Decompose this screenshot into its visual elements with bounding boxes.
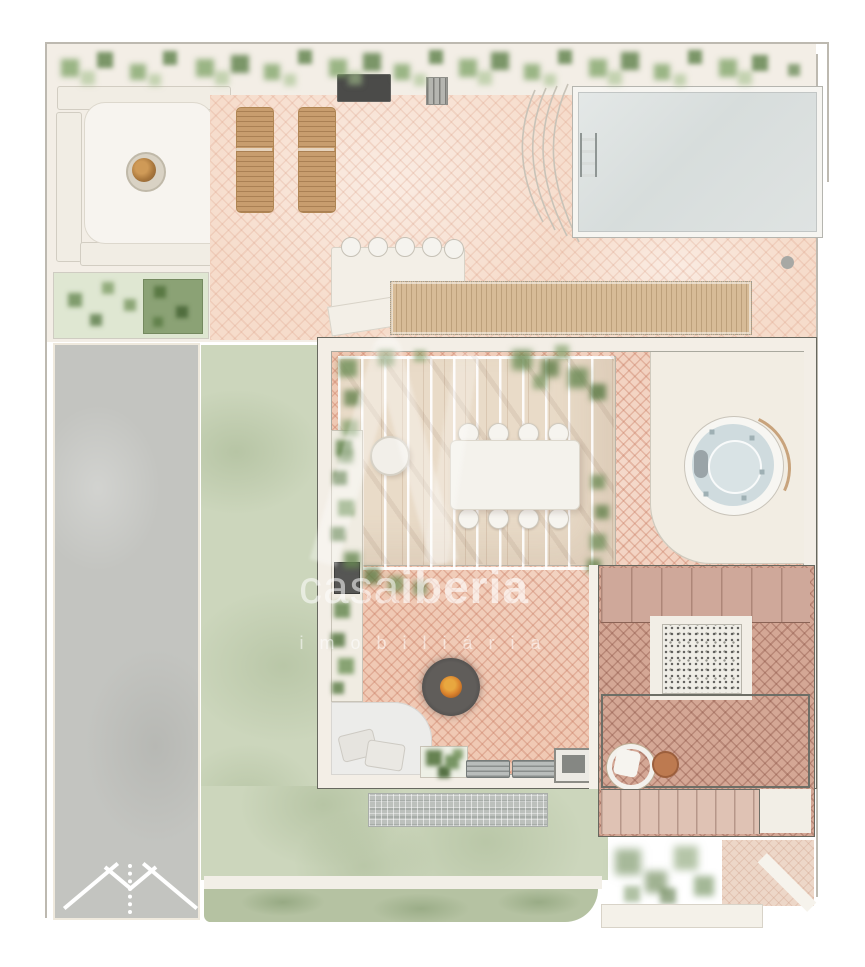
- lower-path-band: [601, 904, 763, 928]
- watermark-brand: casaiberia: [244, 564, 584, 610]
- wood-deck-bench: [390, 281, 752, 335]
- jacuzzi-pillow: [694, 450, 708, 478]
- boundary-left: [45, 42, 47, 918]
- fire-table-bowl: [132, 158, 156, 182]
- floor-cushion: [364, 739, 406, 772]
- bar-stool: [422, 237, 442, 257]
- sun-lounger-fold: [236, 148, 272, 151]
- dining-chair: [548, 508, 569, 529]
- garden-bench: [466, 760, 510, 778]
- annex-plank-steps: [601, 568, 810, 623]
- garden-path: [204, 876, 602, 889]
- side-table: [652, 751, 679, 778]
- shrub-box: [143, 279, 203, 334]
- annex-stairs: [601, 789, 760, 834]
- bar-stool: [444, 239, 464, 259]
- brand-logo-mark: [295, 328, 495, 573]
- boundary-top: [45, 42, 829, 44]
- site-plan: casaiberia imobiliária: [0, 0, 865, 967]
- swimming-pool: [573, 87, 822, 237]
- annex-corner-pad: [760, 789, 811, 833]
- gate-center-dashed: [128, 864, 132, 914]
- pool-ladder: [580, 133, 597, 177]
- skylight-well: [562, 755, 585, 773]
- outdoor-shower-unit: [426, 77, 448, 105]
- hedge: [204, 889, 598, 922]
- garden-bench: [512, 760, 556, 778]
- watermark-tagline: imobiliária: [250, 633, 590, 654]
- sun-lounger: [236, 107, 274, 213]
- bar-stool: [368, 237, 388, 257]
- watermark-brand-iberia: iberia: [400, 561, 529, 613]
- bar-stool: [341, 237, 361, 257]
- bbq-grill: [337, 74, 391, 102]
- grid-paving: [368, 793, 548, 827]
- built-in-bench-left: [56, 112, 82, 262]
- fire-pit-flame: [440, 676, 462, 698]
- gravel-pit: [662, 624, 742, 694]
- sun-lounger-fold: [298, 148, 334, 151]
- built-in-bench-bottom: [80, 242, 230, 266]
- dining-chair: [518, 508, 539, 529]
- sun-lounger: [298, 107, 336, 213]
- watermark-brand-casa: casa: [299, 561, 400, 613]
- boundary-right-outer: [827, 42, 829, 182]
- driveway: [55, 345, 198, 918]
- ground-light: [781, 256, 794, 269]
- jacuzzi-inner-ring: [708, 440, 762, 494]
- courtyard-planter-box: [420, 746, 468, 778]
- bar-stool: [395, 237, 415, 257]
